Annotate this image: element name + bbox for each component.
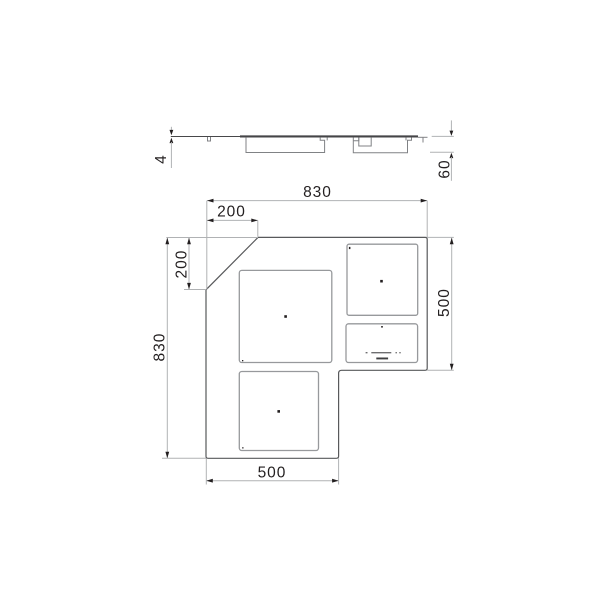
- svg-text:200: 200: [217, 204, 246, 221]
- svg-text:200: 200: [174, 250, 191, 279]
- svg-text:830: 830: [303, 184, 332, 201]
- svg-text:4: 4: [153, 155, 170, 164]
- svg-text:830: 830: [151, 333, 168, 362]
- svg-text:60: 60: [437, 159, 454, 178]
- svg-text:500: 500: [258, 464, 287, 481]
- svg-text:500: 500: [436, 288, 453, 317]
